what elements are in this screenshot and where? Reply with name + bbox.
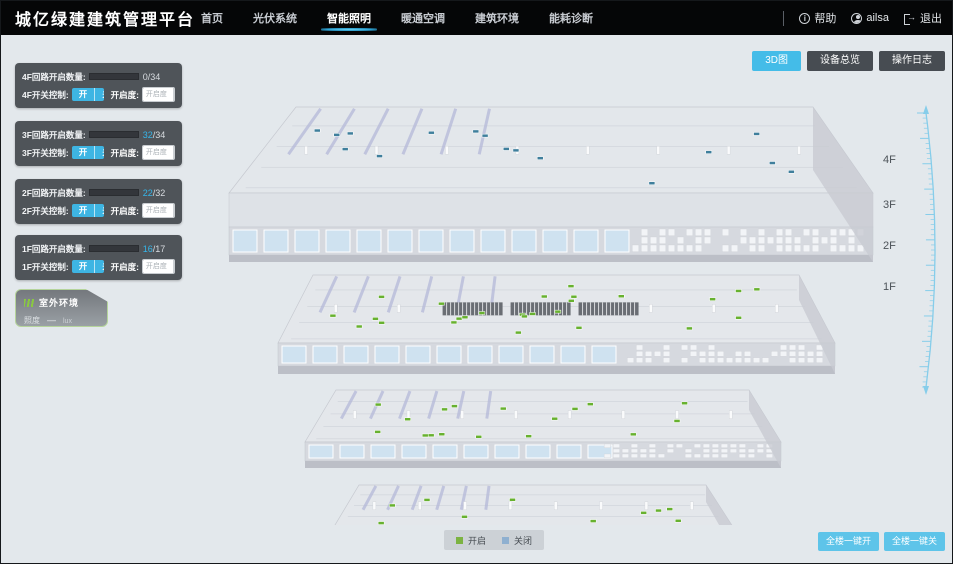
view-switcher: 3D图设备总览操作日志 xyxy=(752,51,945,71)
dim-input-group: % xyxy=(142,145,175,160)
circuit-count-value: 22/32 xyxy=(143,188,166,198)
logout-label: 退出 xyxy=(920,10,942,26)
circuit-count-row: 3F回路开启数量:32/34 xyxy=(22,127,175,142)
light-status-legend: 开启关闭 xyxy=(444,530,544,550)
illuminance-unit: lux xyxy=(63,318,72,325)
switch-off-button[interactable]: 关 xyxy=(94,88,103,102)
switch-buttons: 开关 xyxy=(72,88,104,102)
switch-buttons: 开关 xyxy=(72,204,104,218)
switch-off-button[interactable]: 关 xyxy=(94,260,103,274)
one-key-button-0[interactable]: 全楼一键开 xyxy=(818,532,879,551)
circuit-progress-bar xyxy=(89,73,139,80)
dim-label: 开启度: xyxy=(111,89,139,101)
top-bar: 城亿绿建建筑管理平台 首页光伏系统智能照明暖通空调建筑环境能耗诊断 i 帮助 a… xyxy=(1,1,952,35)
switch-control-row: 2F开关控制:开关开启度:% xyxy=(22,203,175,218)
logout-button[interactable]: 退出 xyxy=(904,10,942,26)
floor-axis-2f: 2F xyxy=(883,240,905,252)
bottom-actions: 全楼一键开全楼一键关 xyxy=(818,532,945,551)
building-floor-1F[interactable] xyxy=(332,485,735,525)
building-floor-2F[interactable] xyxy=(305,390,781,468)
circuit-count-value: 16/17 xyxy=(143,244,166,254)
dim-input[interactable] xyxy=(143,88,173,101)
nav-item-3[interactable]: 暖通空调 xyxy=(399,1,447,35)
circuit-progress-bar xyxy=(89,189,139,196)
one-key-button-1[interactable]: 全楼一键关 xyxy=(884,532,945,551)
switch-on-button[interactable]: 开 xyxy=(72,88,95,102)
outdoor-env-metric: 照度 — lux xyxy=(24,315,99,326)
help-button[interactable]: i 帮助 xyxy=(799,10,836,26)
floor-panel-2f: 2F回路开启数量:22/322F开关控制:开关开启度:% xyxy=(15,179,182,224)
legend-label: 开启 xyxy=(468,534,486,547)
circuit-count-value: 32/34 xyxy=(143,130,166,140)
env-stripes-icon xyxy=(24,299,35,307)
circuit-count-row: 2F回路开启数量:22/32 xyxy=(22,185,175,200)
switch-control-label: 1F开关控制: xyxy=(22,261,69,273)
nav-item-1[interactable]: 光伏系统 xyxy=(251,1,299,35)
dim-input[interactable] xyxy=(143,146,173,159)
view-button-0[interactable]: 3D图 xyxy=(752,51,801,71)
dim-label: 开启度: xyxy=(111,261,139,273)
view-button-1[interactable]: 设备总览 xyxy=(807,51,873,71)
dim-input-group: % xyxy=(142,203,175,218)
legend-item-1: 关闭 xyxy=(502,534,532,547)
switch-control-label: 3F开关控制: xyxy=(22,147,69,159)
dim-percent-button[interactable]: % xyxy=(173,260,175,273)
legend-swatch xyxy=(502,537,509,544)
outdoor-env-title: 室外环境 xyxy=(39,296,79,309)
switch-off-button[interactable]: 关 xyxy=(94,204,103,218)
circuit-count-row: 1F回路开启数量:16/17 xyxy=(22,241,175,256)
legend-label: 关闭 xyxy=(514,534,532,547)
switch-on-button[interactable]: 开 xyxy=(72,204,95,218)
nav-item-0[interactable]: 首页 xyxy=(199,1,225,35)
app-title: 城亿绿建建筑管理平台 xyxy=(15,6,195,30)
floor-axis-3f: 3F xyxy=(883,199,905,211)
circuit-count-label: 2F回路开启数量: xyxy=(22,187,86,199)
dim-input[interactable] xyxy=(143,260,173,273)
illuminance-value: — xyxy=(47,315,56,325)
logout-icon xyxy=(904,13,916,24)
dim-percent-button[interactable]: % xyxy=(173,146,175,159)
dim-percent-button[interactable]: % xyxy=(173,88,175,101)
switch-control-row: 3F开关控制:开关开启度:% xyxy=(22,145,175,160)
circuit-count-label: 1F回路开启数量: xyxy=(22,243,86,255)
header-divider xyxy=(783,11,784,26)
dim-percent-button[interactable]: % xyxy=(173,204,175,217)
help-label: 帮助 xyxy=(814,10,836,26)
view-button-2[interactable]: 操作日志 xyxy=(879,51,945,71)
header-right: i 帮助 ailsa 退出 xyxy=(783,1,942,35)
dim-label: 开启度: xyxy=(111,147,139,159)
switch-control-row: 4F开关控制:开关开启度:% xyxy=(22,87,175,102)
outdoor-env-panel: 室外环境 照度 — lux xyxy=(15,289,108,327)
dim-input-group: % xyxy=(142,259,175,274)
switch-buttons: 开关 xyxy=(72,146,104,160)
switch-on-button[interactable]: 开 xyxy=(72,146,95,160)
circuit-count-value: 0/34 xyxy=(143,72,161,82)
illuminance-label: 照度 xyxy=(24,315,40,326)
help-icon: i xyxy=(799,13,810,24)
switch-off-button[interactable]: 关 xyxy=(94,146,103,160)
building-floor-4F[interactable] xyxy=(229,107,873,262)
floor-panel-1f: 1F回路开启数量:16/171F开关控制:开关开启度:% xyxy=(15,235,182,280)
circuit-count-label: 4F回路开启数量: xyxy=(22,71,86,83)
user-name: ailsa xyxy=(866,12,889,24)
nav-item-4[interactable]: 建筑环境 xyxy=(473,1,521,35)
dim-label: 开启度: xyxy=(111,205,139,217)
switch-on-button[interactable]: 开 xyxy=(72,260,95,274)
outdoor-env-header: 室外环境 xyxy=(24,296,99,309)
circuit-count-row: 4F回路开启数量:0/34 xyxy=(22,69,175,84)
dim-input-group: % xyxy=(142,87,175,102)
floor-scale-ruler[interactable] xyxy=(904,99,952,401)
circuit-progress-bar xyxy=(89,245,139,252)
floor-panel-3f: 3F回路开启数量:32/343F开关控制:开关开启度:% xyxy=(15,121,182,166)
switch-buttons: 开关 xyxy=(72,260,104,274)
switch-control-label: 2F开关控制: xyxy=(22,205,69,217)
main-nav: 首页光伏系统智能照明暖通空调建筑环境能耗诊断 xyxy=(199,1,595,35)
circuit-count-label: 3F回路开启数量: xyxy=(22,129,86,141)
building-3d-view[interactable] xyxy=(201,93,901,525)
floor-axis-1f: 1F xyxy=(883,281,905,293)
switch-control-row: 1F开关控制:开关开启度:% xyxy=(22,259,175,274)
switch-control-label: 4F开关控制: xyxy=(22,89,69,101)
nav-item-2[interactable]: 智能照明 xyxy=(325,1,373,35)
building-floor-3F[interactable] xyxy=(278,275,835,374)
app-root: 城亿绿建建筑管理平台 首页光伏系统智能照明暖通空调建筑环境能耗诊断 i 帮助 a… xyxy=(0,0,953,564)
dim-input[interactable] xyxy=(143,204,173,217)
legend-swatch xyxy=(456,537,463,544)
floor-axis-4f: 4F xyxy=(883,154,905,166)
user-avatar-icon xyxy=(851,13,862,24)
user-menu[interactable]: ailsa xyxy=(851,12,889,24)
circuit-progress-bar xyxy=(89,131,139,138)
legend-item-0: 开启 xyxy=(456,534,486,547)
floor-panel-4f: 4F回路开启数量:0/344F开关控制:开关开启度:% xyxy=(15,63,182,108)
nav-item-5[interactable]: 能耗诊断 xyxy=(547,1,595,35)
